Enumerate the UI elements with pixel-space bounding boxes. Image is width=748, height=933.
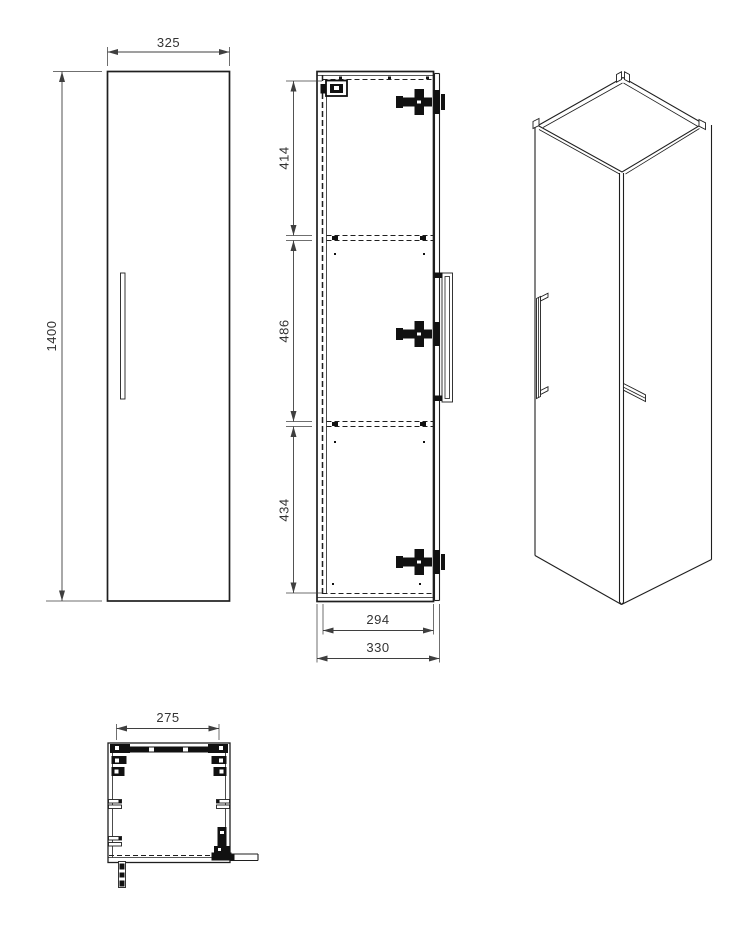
dim-label-plan-width: 275 (156, 710, 179, 725)
iso-top-face (538, 78, 703, 173)
iso-rim-right (624, 83, 699, 127)
iso-rim-left (543, 83, 623, 128)
dim-lower-bay: 434 (277, 427, 323, 594)
iso-apex-tab-left (617, 72, 622, 82)
iso-door-handle-left (537, 293, 549, 398)
dim-upper-bay: 414 (277, 81, 323, 236)
iso-front-edge-thickness-left (539, 130, 620, 175)
iso-front-edge-thickness-right (626, 129, 700, 175)
dim-label-upper-bay: 414 (277, 146, 292, 169)
plan-view: 275 (108, 710, 258, 888)
plan-bottom-fitting (119, 862, 126, 888)
dim-label-lower-bay: 434 (277, 498, 292, 521)
plan-door-handle (230, 854, 259, 861)
side-section-view: 414 486 434 294 330 (277, 72, 453, 663)
iso-corner-tab-left (533, 119, 539, 129)
dim-label-middle-bay: 486 (277, 319, 292, 342)
isometric-view (533, 72, 712, 605)
iso-door-handle-right (624, 384, 646, 402)
dim-middle-bay: 486 (277, 241, 313, 422)
technical-drawing-page: 325 1400 (0, 0, 748, 933)
iso-corner-tab-right (699, 120, 706, 130)
dim-plan-width: 275 (117, 710, 220, 740)
dim-front-height: 1400 (44, 72, 102, 602)
front-door-handle (121, 273, 126, 399)
dim-label-front-width: 325 (157, 35, 180, 50)
iso-bottom-edge-right (622, 560, 712, 605)
dim-front-width: 325 (108, 35, 230, 66)
dim-label-outer-depth: 330 (366, 640, 389, 655)
dim-label-front-height: 1400 (44, 321, 59, 352)
dim-inner-depth: 294 (323, 604, 434, 635)
dim-label-inner-depth: 294 (366, 612, 389, 627)
front-view: 325 1400 (44, 35, 230, 601)
iso-apex-tab-right (625, 72, 630, 82)
front-cabinet-outline (108, 72, 230, 602)
iso-bottom-edge-left (535, 556, 622, 605)
plan-hanging-rail (114, 747, 224, 753)
drawing-canvas: 325 1400 (0, 0, 748, 933)
